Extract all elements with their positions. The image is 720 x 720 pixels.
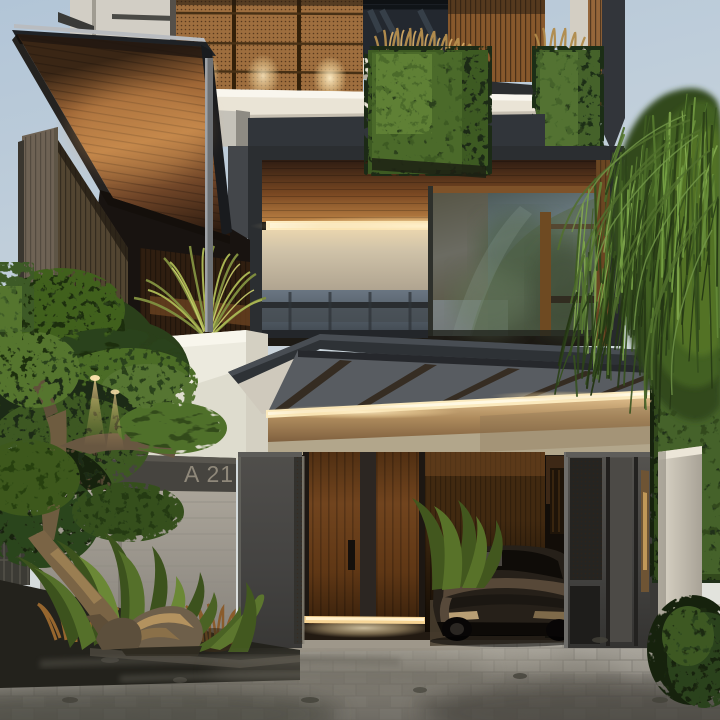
svg-text:A 21: A 21 (184, 461, 234, 487)
